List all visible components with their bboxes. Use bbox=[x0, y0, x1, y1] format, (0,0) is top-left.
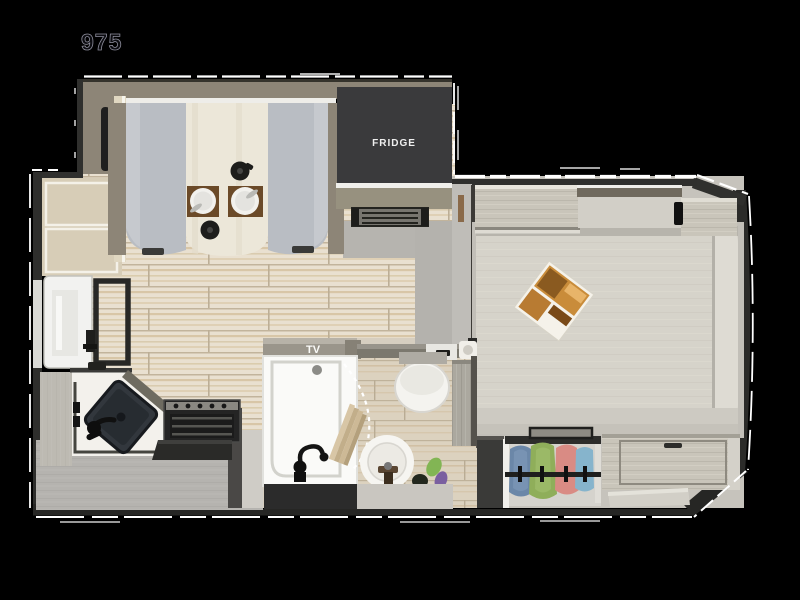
svg-text:FRIDGE: FRIDGE bbox=[372, 138, 416, 149]
svg-text:975: 975 bbox=[81, 29, 122, 55]
svg-text:TV: TV bbox=[306, 344, 321, 356]
